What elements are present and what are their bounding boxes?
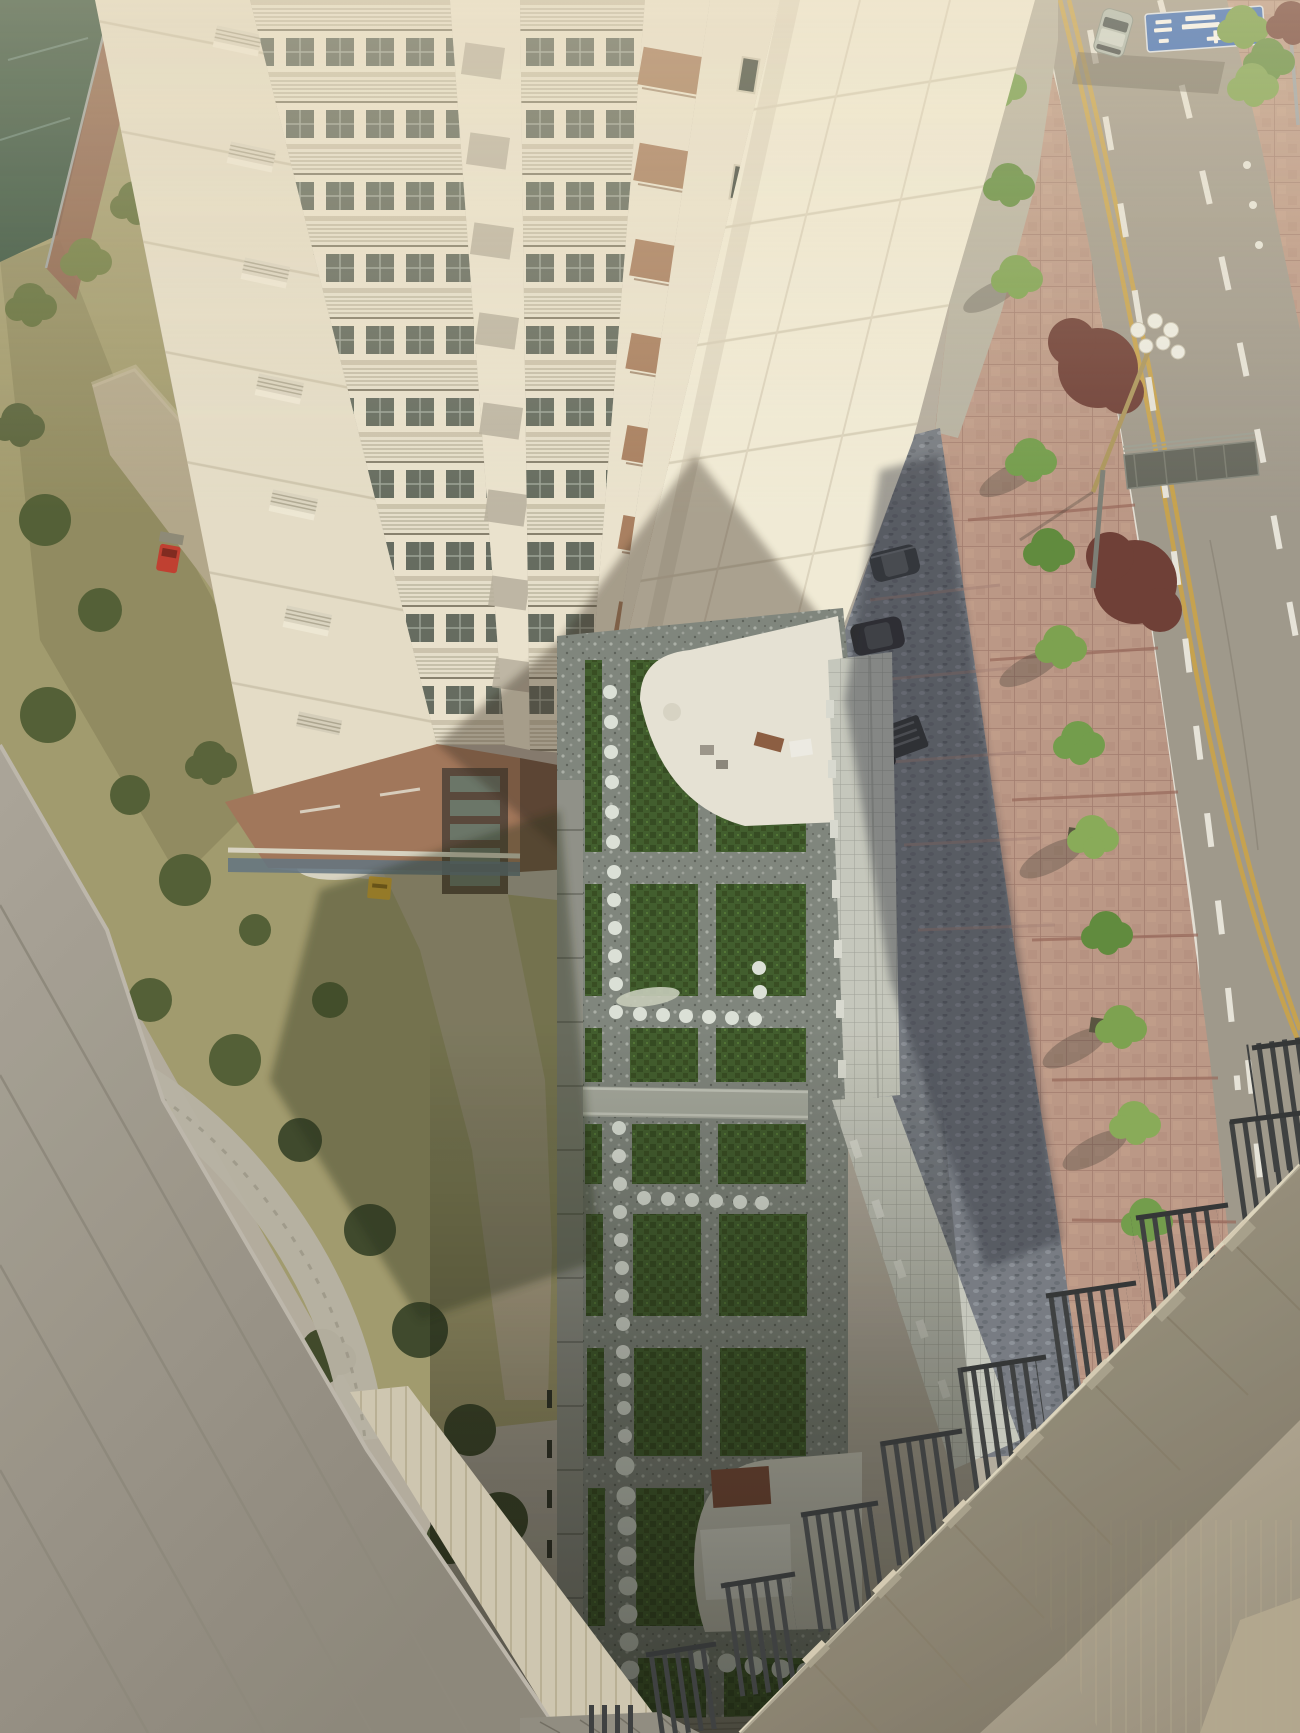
warm-tint [0, 0, 1300, 1733]
photo-canvas [0, 0, 1300, 1733]
